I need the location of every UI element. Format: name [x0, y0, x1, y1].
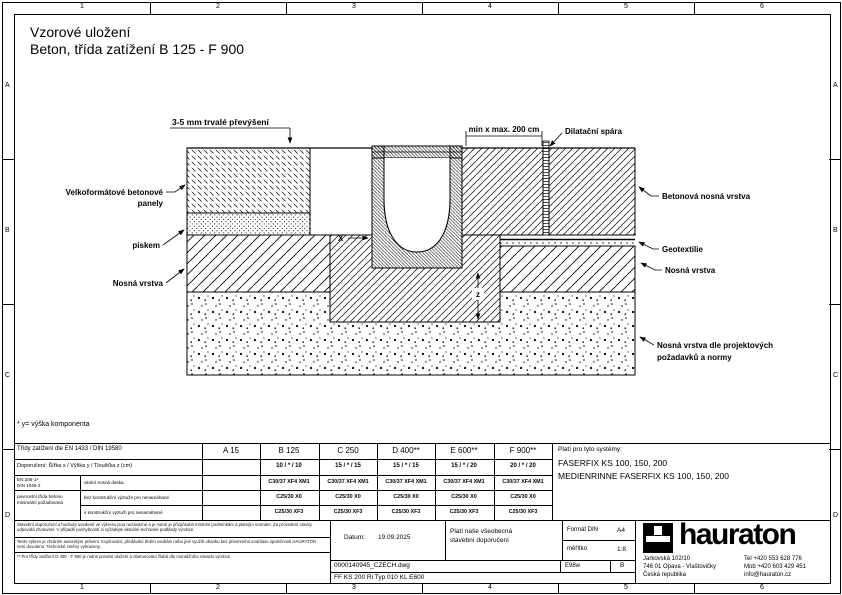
grid-line	[14, 537, 330, 538]
grid-line	[14, 459, 552, 460]
leader-subgrade	[640, 337, 654, 345]
concrete-cell: C25/30 XF3	[450, 509, 479, 515]
type-line: FF KS 200 Ri Typ 010 KL E600	[334, 574, 424, 581]
scale-label: měřítko	[567, 546, 587, 552]
grid-line	[330, 560, 635, 561]
grid-line	[14, 475, 552, 476]
dim-cell: 15 / * / 15	[393, 463, 419, 469]
ruler-col-label: 5	[624, 584, 628, 591]
hauraton-logo-icon	[643, 523, 673, 553]
concrete-cell: C25/30 X0	[451, 494, 476, 500]
grid-line	[80, 475, 81, 520]
ruler-col-label: 1	[80, 584, 84, 591]
table-class-row-label: Třídy zatížení dle EN 1433 / DIN 19580	[17, 446, 122, 452]
label-panels-line2: panely	[138, 199, 164, 208]
norm-label-line1: EN 206-1+	[17, 477, 39, 482]
grid-line	[14, 552, 330, 553]
ruler-tick	[829, 449, 840, 450]
class-header-d400: D 400**	[392, 446, 420, 455]
label-sand: pískem	[132, 241, 160, 250]
label-base-left: Nosná vrstva	[113, 279, 164, 288]
label-elevation: 3-5 mm trvalé převýšení	[172, 117, 269, 127]
label-base-right: Nosná vrstva	[665, 266, 716, 275]
table-dimension-row-label: Doporučení: Šířka x / Výška y / Tloušťka…	[17, 463, 132, 469]
expansion-joint	[543, 141, 549, 235]
dim-cell: 20 / * / 20	[510, 463, 536, 469]
layer-concrete-base-right	[549, 148, 635, 235]
grid-line	[14, 443, 830, 444]
ruler-tick	[422, 583, 423, 593]
disclaimer-paragraph-3: ** Pro třídy zatížení D 400 - F 900 je n…	[17, 554, 325, 559]
ruler-col-label: 2	[216, 584, 220, 591]
grid-line	[202, 443, 203, 520]
grid-line	[330, 572, 635, 573]
disclaimer-paragraph-1: Stavební doporučení a hodnoty uvedené ve…	[17, 522, 325, 532]
ruler-row-label: D	[833, 512, 838, 519]
concrete-cell: C30/37 XF4 XM1	[327, 479, 368, 485]
label-concrete-base: Betonová nosná vrstva	[662, 192, 751, 201]
ruler-col-label: 6	[760, 584, 764, 591]
cross-section-drawing: 3-5 mm trvalé převýšení min x max. 200 c…	[0, 0, 842, 443]
label-subgrade-line1: Nosná vrstva dle projektových	[657, 341, 773, 350]
concrete-cell: C25/30 XF3	[275, 509, 304, 515]
dim-cell: 10 / * / 10	[276, 463, 302, 469]
grid-line	[260, 443, 261, 520]
systems-item: FASERFIX KS 100, 150, 200	[558, 458, 667, 468]
note-line2: stavební doporučení	[450, 537, 509, 544]
ruler-tick	[558, 583, 559, 593]
format-label: Formát DIN	[567, 527, 598, 533]
grid-line	[562, 520, 563, 560]
channel-edge-rail-right	[450, 146, 462, 158]
systems-heading: Platí pro tyto systémy:	[558, 446, 622, 453]
grid-line	[635, 520, 636, 583]
drawing-sheet: 1 2 3 4 5 6 1 2 3 4 5 6 A B C D A B C D …	[0, 0, 842, 595]
concrete-cell: C30/37 XF4 XM1	[443, 479, 484, 485]
grid-line	[552, 443, 553, 520]
norm-sub-line1: pevnostní třída betonu	[17, 494, 63, 499]
class-header-e600: E 600**	[450, 446, 477, 455]
class-header-c250: C 250	[337, 446, 358, 455]
concrete-cell: C25/30 XF3	[392, 509, 421, 515]
concrete-row-label: s konstrukční výztuží pro nenamáhané	[84, 510, 163, 515]
leader-sand	[163, 230, 184, 245]
label-dim-z: z	[476, 290, 480, 299]
layer-concrete-panels	[187, 148, 310, 213]
norm-label-line2: DIN 1045-2	[17, 483, 41, 488]
leader-geotextile	[639, 242, 659, 249]
channel-edge-rail-left	[372, 146, 384, 158]
grid-line	[445, 520, 446, 560]
grid-line	[377, 443, 378, 520]
label-subgrade-line2: požadavků a normy	[657, 353, 732, 362]
dim-cell: 15 / * / 15	[335, 463, 361, 469]
label-geotextile: Geotextilie	[662, 245, 703, 254]
ruler-tick	[2, 449, 14, 450]
grid-line	[560, 560, 561, 572]
revision: B	[620, 562, 624, 569]
date-value: 19.09.2025	[378, 534, 411, 541]
leader-panels	[166, 185, 185, 192]
grid-line	[330, 520, 331, 583]
label-panels-line1: Velkoformátové betonové	[66, 188, 164, 197]
ruler-tick	[150, 583, 151, 593]
class-header-b125: B 125	[279, 446, 300, 455]
grid-line	[494, 443, 495, 520]
grid-line	[435, 443, 436, 520]
file-name: 0000140945_CZECH.dwg	[334, 562, 410, 569]
ruler-col-label: 3	[352, 584, 356, 591]
leader-concrete-base	[639, 187, 659, 196]
layer-base-right	[500, 246, 635, 292]
grid-line	[610, 560, 611, 572]
grid-line	[562, 540, 635, 541]
address-line1: Jarkovská 102/10	[643, 556, 690, 562]
leader-expansion-joint	[550, 133, 562, 146]
layer-sand-bed	[187, 213, 310, 235]
scale-value: 1:8	[617, 546, 626, 553]
sheet-code: E98w	[565, 563, 580, 569]
layer-base-left	[187, 235, 330, 292]
concrete-cell: C25/30 X0	[510, 494, 535, 500]
format-value: A4	[617, 527, 625, 534]
channel-void	[384, 158, 450, 252]
concrete-cell: C25/30 X0	[335, 494, 360, 500]
grid-line	[80, 505, 552, 506]
contact-email: info@hauraton.cz	[744, 572, 791, 578]
label-dim-top: min x max. 200 cm	[469, 125, 540, 134]
hauraton-wordmark: hauraton	[679, 520, 795, 550]
disclaimer-paragraph-2: Tento výkres je chráněn autorským právem…	[17, 539, 325, 549]
label-dim-x: X	[338, 234, 344, 243]
dim-cell: 15 / * / 20	[451, 463, 477, 469]
concrete-cell: C25/30 X0	[393, 494, 418, 500]
concrete-cell: C30/37 XF4 XM1	[502, 479, 543, 485]
address-line2: 746 01 Opava - Vlaštovičky	[643, 564, 716, 570]
address-line3: Česká republika	[643, 572, 686, 578]
ruler-tick	[694, 583, 695, 593]
note-line1: Platí naše všeobecná	[450, 528, 512, 535]
ruler-tick	[286, 583, 287, 593]
ruler-row-label: D	[5, 512, 10, 519]
contact-phone: Tel +420 553 628 776	[744, 556, 802, 562]
systems-item: MEDIENRINNE FASERFIX KS 100, 150, 200	[558, 471, 729, 481]
leader-base-right	[641, 263, 662, 270]
concrete-cell: C25/30 XF3	[334, 509, 363, 515]
contact-mobile: Mob +420 603 429 451	[744, 564, 806, 570]
concrete-row-label: bez konstrukční výztuže pro nenamáhané	[84, 495, 169, 500]
concrete-cell: C25/30 X0	[276, 494, 301, 500]
class-header-a15: A 15	[223, 446, 239, 455]
norm-sub-line2: minimální požadovaná	[17, 500, 63, 505]
leader-base-left	[166, 269, 184, 283]
concrete-row-label: okolní nosná deska	[84, 480, 124, 485]
grid-line	[319, 443, 320, 520]
ruler-col-label: 4	[488, 584, 492, 591]
label-expansion-joint: Dilatační spára	[565, 127, 622, 136]
grid-line	[14, 490, 552, 491]
class-header-f900: F 900**	[510, 446, 537, 455]
concrete-cell: C30/37 XF4 XM1	[385, 479, 426, 485]
concrete-cell: C30/37 XF4 XM1	[268, 479, 309, 485]
concrete-cell: C25/30 XF3	[509, 509, 538, 515]
layer-concrete-strip	[462, 148, 543, 235]
date-label: Datum:	[344, 534, 365, 541]
